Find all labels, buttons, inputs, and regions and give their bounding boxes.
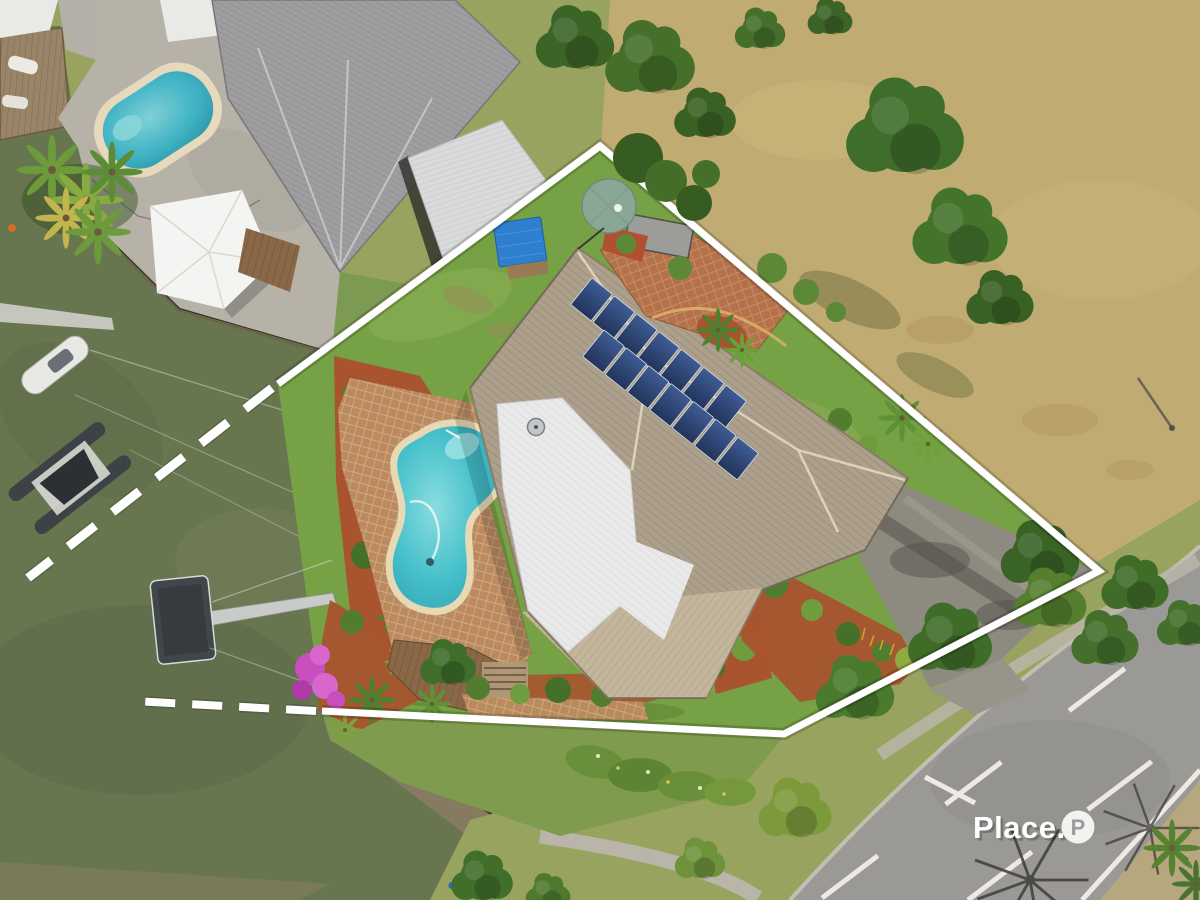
watermark-logo: Place. Place. P [973,810,1095,848]
round-hedge [793,279,819,305]
round-hedge [826,302,846,322]
light-pole [1169,425,1175,431]
logo-badge-letter: P [1071,815,1086,840]
orange-buoy [8,224,16,232]
aerial-scene: Place. Place. P [0,0,1200,900]
round-hedge [616,234,636,254]
aerial-property-photo: Place. Place. P [0,0,1200,900]
tank-fitting [614,204,622,212]
pool-cleaner [426,558,434,566]
logo-brand-text: Place. [973,810,1066,845]
round-hedge [668,256,692,280]
